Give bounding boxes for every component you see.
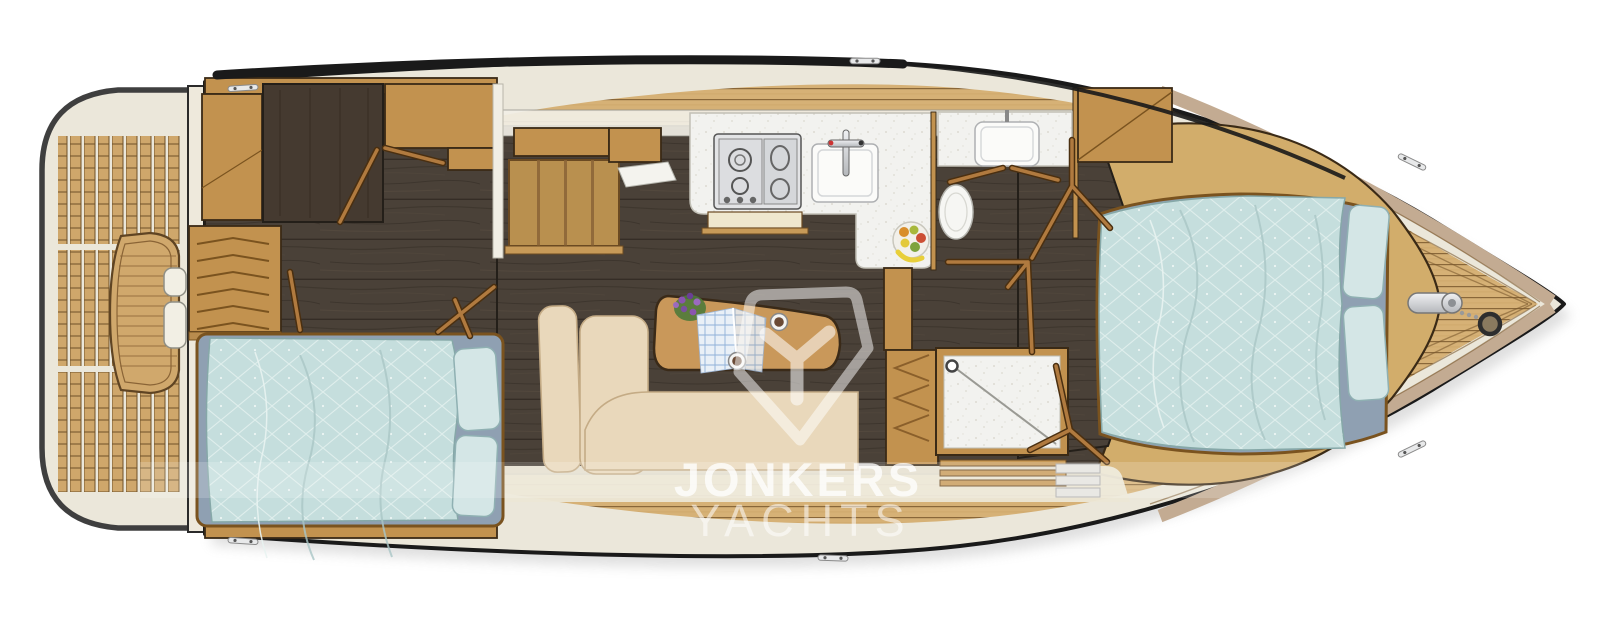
master-pillow-bottom (1343, 305, 1389, 402)
master-pillow-top (1342, 204, 1390, 299)
yacht-deck-plan-page: JONKERS YACHTS (0, 0, 1600, 619)
yacht-deck-plan-illustration: JONKERS YACHTS (0, 0, 1600, 619)
under-stove-sill (702, 228, 808, 234)
aft-cabinet-right (385, 84, 497, 148)
wardrobe-column (884, 268, 912, 350)
head-wall-left (931, 112, 936, 270)
under-stove-drawer (708, 212, 802, 228)
transom-door-handle (164, 302, 186, 348)
aft-cabinet-step (448, 148, 497, 170)
aft-pillow-top (453, 347, 501, 432)
master-bed (1097, 194, 1390, 454)
salon-bulkhead (493, 84, 503, 258)
stove-cooktop (714, 134, 801, 209)
shower-drain-icon (947, 361, 958, 372)
toilet (939, 185, 973, 239)
aft-cabin-bed (197, 334, 503, 560)
wardrobe-hanger-box (886, 350, 938, 465)
stairs-top-drawer (514, 128, 609, 156)
basin-faucet-icon (1005, 110, 1009, 122)
stairs-side-shelf (609, 128, 661, 162)
master-cabin (1018, 123, 1500, 484)
coffee-cup (771, 314, 788, 331)
aft-dark-dresser (263, 84, 383, 222)
teak-slats-upper (58, 136, 182, 244)
aft-cabinet-left (202, 94, 262, 220)
bow-hawse-ring (1480, 314, 1500, 334)
transom-step-pad (164, 268, 186, 296)
aft-wardrobe-hangers (189, 226, 281, 340)
watermark-brand-sub: YACHTS (690, 495, 911, 546)
master-bed-duvet (1099, 196, 1345, 450)
stairs-sill (505, 246, 623, 254)
settee-back-cushion-left (538, 305, 582, 472)
